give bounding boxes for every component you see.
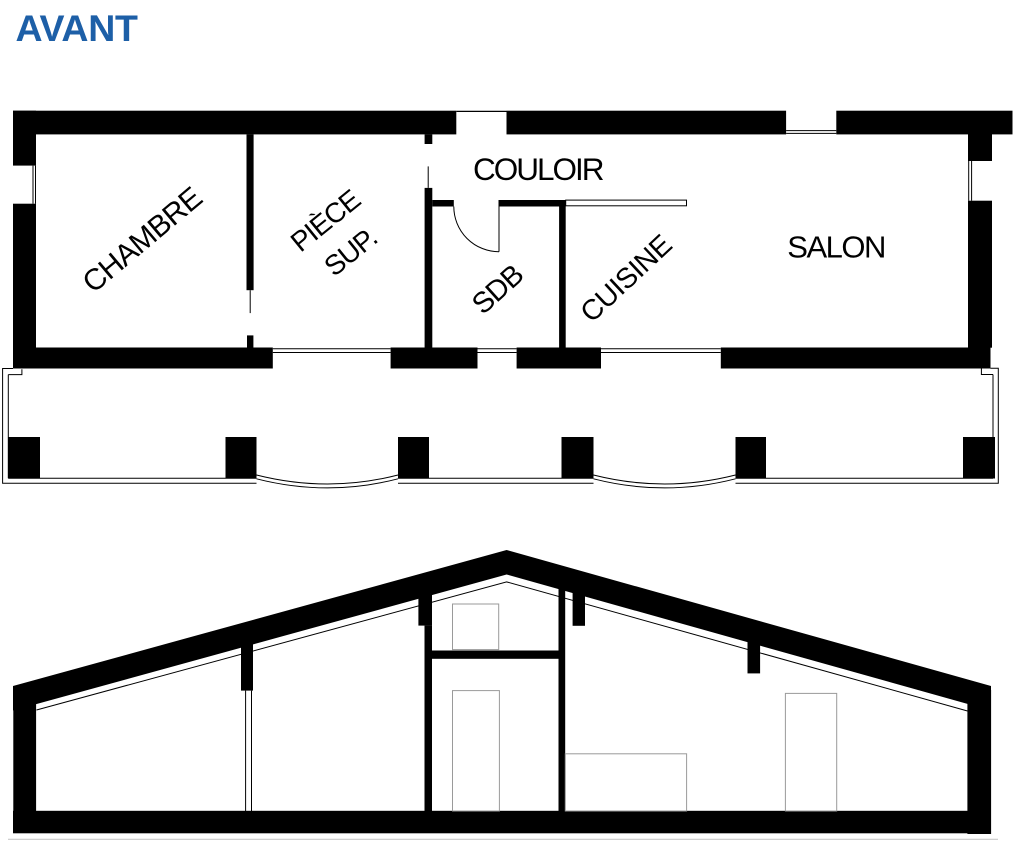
svg-text:COULOIR: COULOIR [473,151,604,187]
svg-text:AVANT: AVANT [16,7,138,49]
svg-text:SALON: SALON [787,229,885,264]
